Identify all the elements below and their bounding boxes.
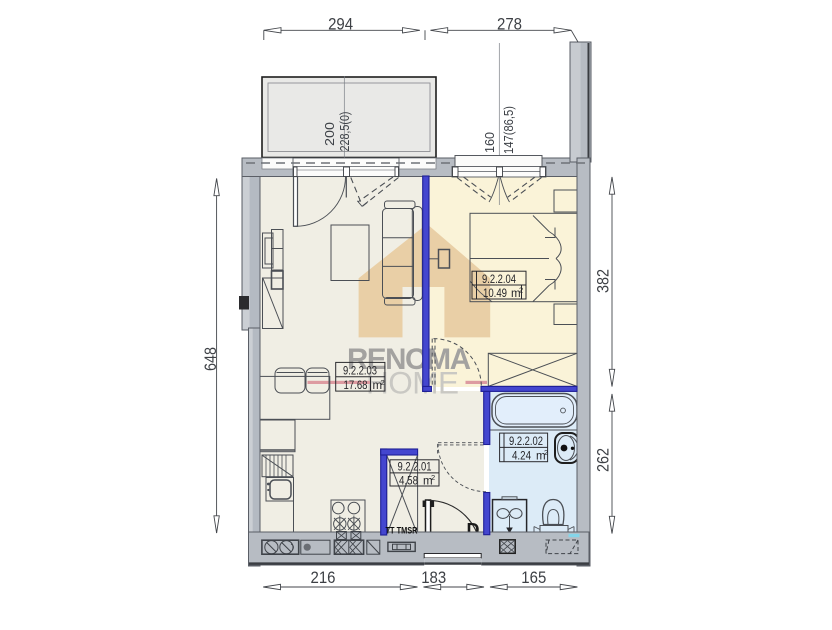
- svg-text:183: 183: [421, 568, 446, 587]
- svg-text:2: 2: [431, 473, 435, 482]
- svg-text:147(86,5): 147(86,5): [502, 106, 516, 154]
- svg-text:294: 294: [328, 14, 353, 33]
- svg-text:382: 382: [594, 269, 613, 293]
- svg-text:2: 2: [381, 378, 385, 387]
- svg-text:TT TMSR: TT TMSR: [386, 526, 418, 536]
- svg-text:262: 262: [594, 448, 613, 472]
- svg-text:9.2.2.01: 9.2.2.01: [398, 462, 432, 474]
- svg-text:648: 648: [201, 347, 220, 371]
- svg-text:10.49: 10.49: [483, 288, 507, 300]
- svg-text:216: 216: [311, 568, 336, 587]
- svg-text:200: 200: [323, 122, 337, 146]
- svg-text:2: 2: [519, 286, 523, 295]
- svg-text:4.24: 4.24: [512, 450, 532, 462]
- svg-text:4.58: 4.58: [399, 475, 418, 487]
- svg-text:9.2.2.03: 9.2.2.03: [343, 365, 377, 377]
- svg-text:2: 2: [544, 448, 548, 457]
- svg-text:160: 160: [483, 132, 497, 153]
- svg-text:228,5(0): 228,5(0): [338, 112, 352, 152]
- svg-text:9.2.2.02: 9.2.2.02: [509, 436, 543, 448]
- svg-text:165: 165: [521, 568, 546, 587]
- svg-text:17.68: 17.68: [344, 380, 368, 392]
- svg-text:278: 278: [497, 14, 522, 33]
- svg-text:9.2.2.04: 9.2.2.04: [482, 274, 516, 286]
